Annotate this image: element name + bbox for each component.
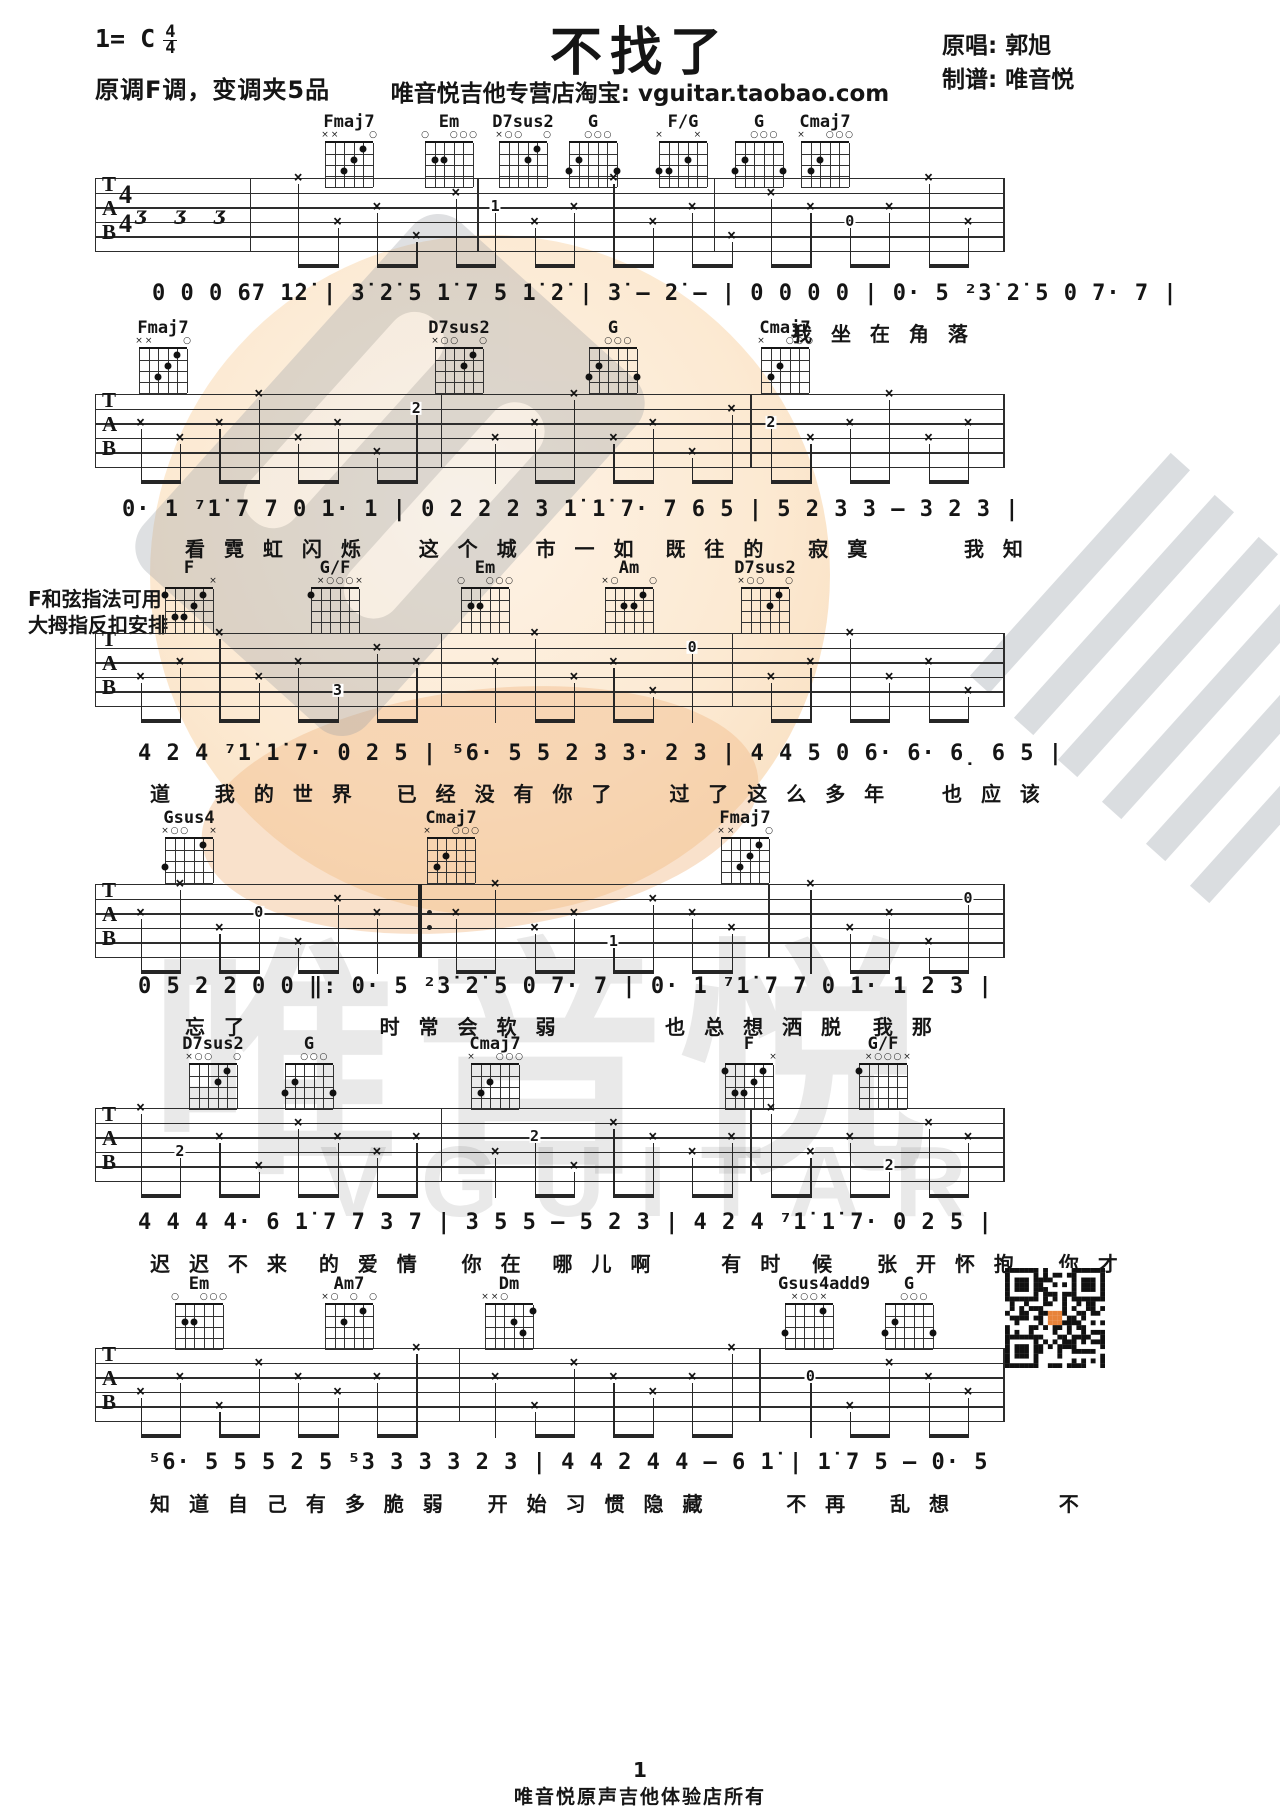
open-string-marker: ○ — [486, 577, 494, 586]
note-stem — [613, 444, 614, 484]
note-stem — [692, 654, 693, 723]
finger-dot — [807, 167, 814, 174]
chord-diagram-d7sus2: D7sus2×○○○ — [734, 558, 796, 633]
fret-line — [285, 1098, 333, 1099]
chord-name: Cmaj7 — [420, 808, 482, 827]
string-line — [321, 589, 322, 633]
finger-dot — [566, 167, 573, 174]
string-line — [481, 1065, 482, 1109]
note-stem — [298, 444, 299, 484]
staff-line — [95, 662, 1005, 663]
tab-note: × — [569, 670, 578, 683]
chord-diagram-cmaj7: Cmaj7×○○○ — [754, 318, 816, 393]
chord-grid — [741, 587, 789, 633]
note-stem — [771, 199, 772, 268]
muted-string-marker: × — [355, 577, 363, 586]
staff-line — [95, 913, 1005, 914]
chord-name: F/G — [652, 112, 714, 131]
tab-note: × — [806, 431, 815, 444]
fingering-note: F和弦指法可用 大拇指反扣安排 — [28, 586, 168, 638]
fret-line — [735, 154, 783, 155]
tab-note: × — [688, 1370, 697, 1383]
tab-note: × — [845, 1130, 854, 1143]
finger-dot — [162, 863, 169, 870]
finger-dot — [656, 167, 663, 174]
tab-note: 0 — [253, 906, 264, 919]
string-line — [471, 589, 472, 633]
string-line — [490, 589, 491, 633]
string-line — [514, 1305, 515, 1349]
tab-note: × — [963, 684, 972, 697]
tab-note: × — [372, 1370, 381, 1383]
chord-diagram-d7sus2: D7sus2×○○○ — [492, 112, 554, 187]
note-stem — [574, 1172, 575, 1198]
chord-diagram-g-f: G/F×○○○× — [304, 558, 366, 633]
note-beam — [219, 480, 258, 484]
finger-dot — [741, 156, 748, 163]
fret-line — [325, 1338, 373, 1339]
note-stem — [456, 199, 457, 268]
tab-note: × — [294, 171, 303, 184]
footer-owner: 唯音悦原声吉他体验店所有 — [0, 1782, 1280, 1809]
fret-line — [325, 1316, 373, 1317]
note-beam — [929, 1434, 968, 1438]
tab-note: × — [924, 171, 933, 184]
note-stem — [535, 228, 536, 268]
string-line — [359, 589, 360, 633]
finger-dot — [477, 602, 484, 609]
string-line — [790, 349, 791, 393]
chord-grid — [139, 347, 187, 393]
measure-barline — [250, 178, 251, 251]
note-beam — [692, 264, 731, 268]
note-beam — [771, 264, 810, 268]
tab-letter-b: B — [102, 677, 116, 698]
string-line — [194, 1305, 195, 1349]
chord-diagram-g: G○○○ — [878, 1274, 940, 1349]
staff-line — [95, 928, 1005, 929]
note-stem — [338, 429, 339, 484]
fret-line — [761, 382, 809, 383]
note-stem — [653, 905, 654, 974]
quarter-rest: ʒ — [174, 207, 185, 220]
note-stem — [850, 228, 851, 268]
note-stem — [692, 1383, 693, 1438]
muted-string-marker: × — [791, 1293, 799, 1302]
note-stem — [889, 683, 890, 723]
finger-dot — [746, 852, 753, 859]
note-stem — [141, 429, 142, 484]
open-string-marker: ○ — [805, 337, 813, 346]
note-stem — [574, 683, 575, 723]
finger-dot — [510, 1318, 517, 1325]
staff-line — [95, 706, 1005, 707]
chord-name: Gsus4add9 — [778, 1274, 840, 1293]
chord-diagram-d7sus2: D7sus2×○○○ — [182, 1034, 244, 1109]
finger-dot — [630, 602, 637, 609]
open-string-marker: ○ — [845, 131, 853, 140]
fret-line — [499, 176, 547, 177]
chord-string-markers: ×○○○ — [741, 577, 789, 587]
open-string-marker: ○ — [471, 827, 479, 836]
note-stem — [259, 919, 260, 974]
fret-line — [859, 1098, 907, 1099]
chord-name: Am — [598, 558, 660, 577]
open-string-marker: ○ — [233, 1053, 241, 1062]
chord-string-markers: ×○○○ — [499, 131, 547, 141]
note-stem — [298, 1129, 299, 1198]
fret-line — [801, 154, 849, 155]
note-beam — [692, 1194, 731, 1198]
open-string-marker: ○ — [810, 1293, 818, 1302]
note-stem — [771, 429, 772, 484]
string-line — [504, 1305, 505, 1349]
staff-line — [95, 394, 1005, 395]
staff-time-bottom: 4 — [119, 211, 132, 237]
chord-grid — [721, 837, 769, 883]
chord-diagram-fmaj7: Fmaj7××○ — [132, 318, 194, 393]
chord-string-markers: ×○○○× — [311, 577, 359, 587]
tab-staff-6: TAB×××××××××××××××0×××× — [95, 1348, 1005, 1421]
finger-dot — [891, 1318, 898, 1325]
staff-line — [95, 1137, 1005, 1138]
original-singer: 原唱: 郭旭 — [942, 26, 1051, 60]
muted-string-marker: × — [423, 827, 431, 836]
fret-line — [735, 176, 783, 177]
chord-diagram-am: Am×○○ — [598, 558, 660, 633]
tab-note: × — [688, 906, 697, 919]
tab-note: × — [491, 431, 500, 444]
string-line — [888, 1065, 889, 1109]
finger-dot — [360, 1307, 367, 1314]
tab-note: × — [215, 416, 224, 429]
staff-line — [95, 193, 1005, 194]
finger-dot — [882, 1329, 889, 1336]
fret-line — [725, 1087, 773, 1088]
chord-name: G — [278, 1034, 340, 1053]
string-line — [499, 589, 500, 633]
note-beam — [377, 480, 416, 484]
note-stem — [180, 444, 181, 484]
tab-note: × — [215, 1130, 224, 1143]
fret-line — [801, 165, 849, 166]
chord-string-markers: ××○ — [721, 827, 769, 837]
tab-note: × — [333, 416, 342, 429]
note-stem — [653, 1398, 654, 1438]
open-string-marker: ○ — [594, 131, 602, 140]
fret-line — [165, 872, 213, 873]
note-stem — [259, 1369, 260, 1438]
note-beam — [771, 719, 810, 723]
staff-start-barline — [95, 1348, 96, 1421]
tab-letter-b: B — [102, 222, 116, 243]
tab-note: × — [491, 877, 500, 890]
string-line — [741, 589, 742, 633]
note-beam — [141, 1434, 180, 1438]
fret-line — [325, 154, 373, 155]
string-line — [754, 1065, 755, 1109]
string-line — [335, 1305, 336, 1349]
open-string-marker: ○ — [495, 577, 503, 586]
finger-dot — [737, 863, 744, 870]
staff-line — [95, 1108, 1005, 1109]
chord-grid — [859, 1063, 907, 1109]
string-line — [627, 349, 628, 393]
string-line — [637, 349, 638, 393]
finger-dot — [732, 167, 739, 174]
note-stem — [850, 429, 851, 484]
fret-line — [725, 1076, 773, 1077]
string-line — [923, 1305, 924, 1349]
note-beam — [771, 480, 810, 484]
tab-note: × — [215, 1399, 224, 1412]
fret-line — [471, 1098, 519, 1099]
note-beam — [219, 1434, 258, 1438]
staff-start-barline — [95, 1108, 96, 1181]
muted-string-marker: × — [717, 827, 725, 836]
tab-note: × — [136, 1101, 145, 1114]
staff-line — [95, 222, 1005, 223]
fret-line — [605, 622, 653, 623]
open-string-marker: ○ — [584, 131, 592, 140]
staff-line — [95, 1181, 1005, 1182]
chord-diagram-g-f: G/F×○○○× — [852, 1034, 914, 1109]
note-stem — [495, 1158, 496, 1198]
note-beam — [298, 1194, 337, 1198]
staff-line — [95, 677, 1005, 678]
note-beam — [692, 1434, 731, 1438]
note-stem — [338, 1398, 339, 1438]
note-stem — [692, 213, 693, 268]
string-line — [634, 589, 635, 633]
tab-note: × — [885, 200, 894, 213]
tab-note: × — [530, 626, 539, 639]
note-beam — [298, 264, 337, 268]
tab-letter-b: B — [102, 1152, 116, 1173]
note-stem — [968, 228, 969, 268]
open-string-marker: ○ — [204, 1053, 212, 1062]
fret-line — [461, 611, 509, 612]
staff-line — [95, 423, 1005, 424]
muted-string-marker: × — [481, 1293, 489, 1302]
open-string-marker: ○ — [336, 577, 344, 586]
chord-diagram-am7: Am7×○○○ — [318, 1274, 380, 1349]
chord-string-markers: ×○○○ — [189, 1053, 237, 1063]
string-line — [885, 1305, 886, 1349]
note-stem — [810, 890, 811, 974]
fret-line — [285, 1076, 333, 1077]
open-string-marker: ○ — [310, 1053, 318, 1062]
tab-letter-t: T — [102, 174, 116, 195]
fret-line — [311, 611, 359, 612]
tab-note: × — [491, 655, 500, 668]
note-stem — [377, 1383, 378, 1438]
finger-dot — [595, 362, 602, 369]
tab-note: × — [609, 1115, 618, 1128]
tab-note: × — [845, 1399, 854, 1412]
repeat-sign-bar — [418, 884, 422, 957]
tab-note: × — [806, 877, 815, 890]
tab-note: × — [845, 626, 854, 639]
note-stem — [653, 697, 654, 723]
chord-string-markers: ×○○× — [165, 827, 213, 837]
open-string-marker: ○ — [826, 131, 834, 140]
tab-note: × — [491, 1370, 500, 1383]
muted-string-marker: × — [145, 337, 153, 346]
note-stem — [771, 1114, 772, 1198]
string-line — [624, 589, 625, 633]
string-line — [285, 1065, 286, 1109]
chord-name: Fmaj7 — [714, 808, 776, 827]
fret-line — [175, 1338, 223, 1339]
open-string-marker: ○ — [500, 1293, 508, 1302]
tab-note: × — [412, 1341, 421, 1354]
string-line — [907, 1065, 908, 1109]
measure-barline — [441, 1108, 442, 1181]
tab-letter-a: A — [102, 1128, 117, 1149]
note-stem — [377, 919, 378, 974]
tab-note: × — [845, 921, 854, 934]
tab-note: × — [806, 200, 815, 213]
tab-note: × — [136, 1385, 145, 1398]
chord-name: Cmaj7 — [794, 112, 856, 131]
fret-line — [435, 382, 483, 383]
tab-note: × — [845, 416, 854, 429]
fret-line — [471, 1087, 519, 1088]
fret-line — [721, 872, 769, 873]
chord-grid — [165, 837, 213, 883]
tab-note: 2 — [529, 1130, 540, 1143]
staff-start-barline — [95, 633, 96, 706]
finger-dot — [214, 1078, 221, 1085]
finger-dot — [776, 591, 783, 598]
open-string-marker: ○ — [910, 1293, 918, 1302]
note-stem — [574, 400, 575, 484]
note-stem — [180, 890, 181, 974]
open-string-marker: ○ — [874, 1053, 882, 1062]
note-stem — [535, 934, 536, 974]
finger-dot — [341, 1318, 348, 1325]
note-stem — [810, 1158, 811, 1198]
tab-note: × — [412, 229, 421, 242]
tab-note: × — [372, 906, 381, 919]
finger-dot — [750, 1078, 757, 1085]
fret-line — [485, 1338, 533, 1339]
note-stem — [850, 1143, 851, 1198]
open-string-marker: ○ — [461, 827, 469, 836]
measure-barline — [750, 394, 751, 467]
staff-line — [95, 452, 1005, 453]
string-line — [435, 349, 436, 393]
chord-diagram-gsus4: Gsus4×○○× — [158, 808, 220, 883]
finger-dot — [190, 602, 197, 609]
open-string-marker: ○ — [331, 1293, 339, 1302]
string-line — [139, 349, 140, 393]
muted-string-marker: × — [903, 1053, 911, 1062]
string-line — [789, 589, 790, 633]
muted-string-marker: × — [209, 827, 217, 836]
muted-string-marker: × — [161, 827, 169, 836]
string-line — [618, 349, 619, 393]
string-line — [605, 589, 606, 633]
chord-name: D7sus2 — [492, 112, 554, 131]
chord-name: Em — [168, 1274, 230, 1293]
tab-note: × — [294, 655, 303, 668]
note-stem — [377, 213, 378, 268]
note-stem — [889, 1369, 890, 1438]
string-line — [735, 1065, 736, 1109]
tab-note: 2 — [174, 1145, 185, 1158]
open-string-marker: ○ — [603, 131, 611, 140]
measure-barline — [1003, 633, 1004, 706]
fingering-note-line1: F和弦指法可用 — [28, 586, 168, 612]
note-stem — [889, 1172, 890, 1198]
tab-note: × — [569, 1159, 578, 1172]
chord-diagram-f-g: F/G×× — [652, 112, 714, 187]
note-stem — [850, 639, 851, 723]
chord-grid — [325, 1303, 373, 1349]
note-stem — [141, 683, 142, 723]
chord-diagram-d7sus2: D7sus2×○○○ — [428, 318, 490, 393]
tab-note: 0 — [687, 640, 698, 653]
tab-note: × — [530, 215, 539, 228]
open-string-marker: ○ — [747, 577, 755, 586]
finger-dot — [350, 156, 357, 163]
note-beam — [377, 1194, 416, 1198]
chord-grid — [285, 1063, 333, 1109]
chord-name: G/F — [852, 1034, 914, 1053]
string-line — [194, 589, 195, 633]
string-line — [175, 1305, 176, 1349]
muted-string-marker: × — [757, 337, 765, 346]
tab-staff-4: TAB×××0×××××××1×××××××0 — [95, 884, 1005, 957]
note-stem — [416, 242, 417, 268]
fret-line — [659, 154, 707, 155]
note-stem — [929, 444, 930, 484]
fret-line — [499, 165, 547, 166]
tab-staff-2: TAB×××××××2×××××××2××××× — [95, 394, 1005, 467]
open-string-marker: ○ — [505, 577, 513, 586]
note-beam — [298, 719, 337, 723]
fret-line — [165, 611, 213, 612]
chord-string-markers: ×○○× — [785, 1293, 833, 1303]
string-line — [914, 1305, 915, 1349]
tab-letter-b: B — [102, 928, 116, 949]
note-beam — [850, 1194, 889, 1198]
note-stem — [968, 1143, 969, 1198]
note-stem — [889, 213, 890, 268]
string-line — [349, 589, 350, 633]
note-beam — [850, 480, 889, 484]
chord-name: D7sus2 — [428, 318, 490, 337]
tab-note: × — [924, 1370, 933, 1383]
fret-line — [605, 600, 653, 601]
note-stem — [495, 444, 496, 484]
muted-string-marker: × — [797, 131, 805, 140]
finger-dot — [431, 156, 438, 163]
chord-name: G — [582, 318, 644, 337]
finger-dot — [441, 156, 448, 163]
finger-dot — [171, 613, 178, 620]
chord-name: D7sus2 — [182, 1034, 244, 1053]
note-stem — [732, 934, 733, 974]
fret-line — [859, 1087, 907, 1088]
staff-line — [95, 1152, 1005, 1153]
string-line — [344, 1305, 345, 1349]
tab-letter-b: B — [102, 1392, 116, 1413]
muted-string-marker: × — [321, 1293, 329, 1302]
open-string-marker: ○ — [171, 1293, 179, 1302]
